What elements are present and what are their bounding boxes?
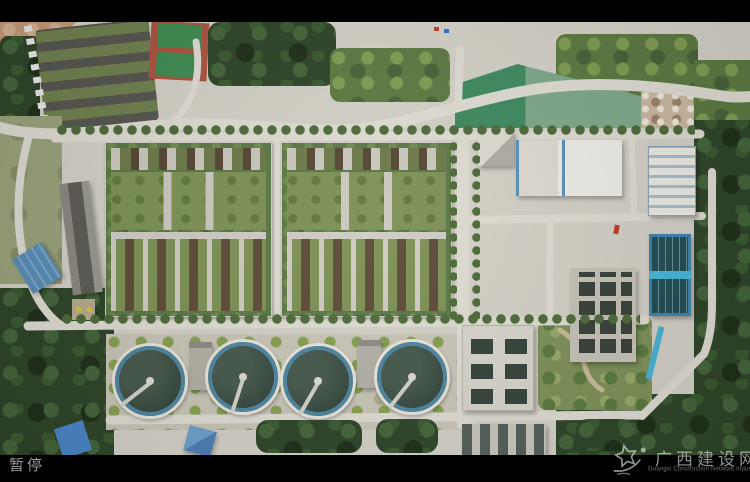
pause-button[interactable]: 暂停: [9, 454, 45, 475]
video-player: 暂停 广西建设网 Guangxi Construction Network In…: [0, 0, 750, 482]
aerial-photo: [0, 22, 750, 455]
watermark-subtitle: Guangxi Construction Network Industry Ed…: [648, 466, 740, 472]
photo-tint: [0, 22, 750, 455]
shooting-star-logo-icon: [608, 441, 654, 479]
letterbox-top: [0, 0, 750, 22]
watermark: 广西建设网 Guangxi Construction Network Indus…: [580, 438, 750, 480]
